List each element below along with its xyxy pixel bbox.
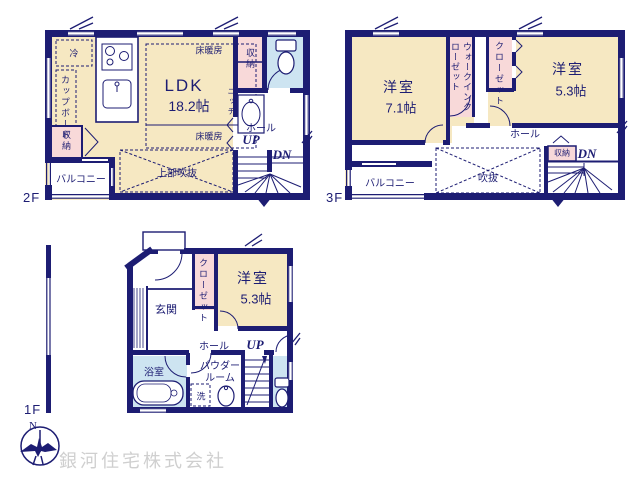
floor-label-1f: 1F xyxy=(24,402,41,417)
downspout-arrow-2f xyxy=(256,197,272,207)
room-label-ldk: LDK xyxy=(164,76,203,96)
label-laundry: 洗 xyxy=(196,390,205,403)
room-label-entrance: 玄関 xyxy=(155,301,177,317)
room-label-walk-in-closet: ウォークインクローゼット xyxy=(449,42,473,114)
label-floor-heating-top: 床暖房 xyxy=(195,44,222,57)
label-void-3f: 吹抜 xyxy=(478,170,498,185)
room-label-storage-3f: 収納 xyxy=(554,148,570,159)
label-up-1f: UP xyxy=(246,337,263,353)
room-label-balcony-2f: バルコニー xyxy=(56,171,106,186)
room-label-fridge: 冷 xyxy=(69,47,78,60)
label-void-above: 上部吹抜 xyxy=(157,165,197,180)
room-size-ldk: 18.2帖 xyxy=(168,96,209,116)
compass-north-icon xyxy=(20,427,59,465)
room-label-closet-3f: クローゼット xyxy=(493,41,506,107)
room-label-bedroom-1f: 洋室 xyxy=(237,268,269,288)
label-dn-2f: DN xyxy=(273,147,292,163)
site-boundary-line xyxy=(46,245,51,413)
room-label-hall-3f: ホール xyxy=(510,126,540,141)
label-niche: ニッチ xyxy=(226,87,237,117)
room-label-bath: 浴室 xyxy=(144,364,164,379)
floor-plan-1f xyxy=(46,232,300,413)
room-label-powder-room: パウダールーム xyxy=(197,361,243,384)
room-label-hall-1f: ホール xyxy=(199,338,229,353)
floor-label-3f: 3F xyxy=(326,190,343,205)
kitchen-counter-icon xyxy=(96,37,138,122)
compass-north-label: N xyxy=(29,420,37,432)
room-label-storage-left: 収納 xyxy=(60,130,73,152)
room-label-balcony-3f: バルコニー xyxy=(365,175,415,190)
downspout-arrow-3f xyxy=(550,197,566,207)
bathtub-icon xyxy=(133,381,183,405)
label-up-2f: UP xyxy=(242,132,259,148)
room-label-storage-right: 収納 xyxy=(244,48,257,70)
label-dn-3f: DN xyxy=(578,146,597,162)
washbasin-icon-1f xyxy=(218,386,234,406)
floor-label-2f: 2F xyxy=(23,190,40,205)
floor-plan-drawing xyxy=(0,0,640,480)
toilet-icon-1f xyxy=(275,378,289,407)
room-label-closet-1f: クローゼット xyxy=(197,258,210,324)
room-label-bedroom-right: 洋室 xyxy=(552,59,584,79)
room-label-bedroom-left: 洋室 xyxy=(383,77,415,97)
label-floor-heating-bottom: 床暖房 xyxy=(195,130,222,143)
company-name: 銀河住宅株式会社 xyxy=(59,447,227,473)
room-size-bedroom-1f: 5.3帖 xyxy=(240,289,271,308)
room-size-bedroom-left: 7.1帖 xyxy=(385,98,416,117)
floor-plan-page: 冷 カップボード 収納 LDK 18.2帖 床暖房 床暖房 上部吹抜 ニッチ 収… xyxy=(0,0,640,480)
room-size-bedroom-right: 5.3帖 xyxy=(555,81,586,100)
